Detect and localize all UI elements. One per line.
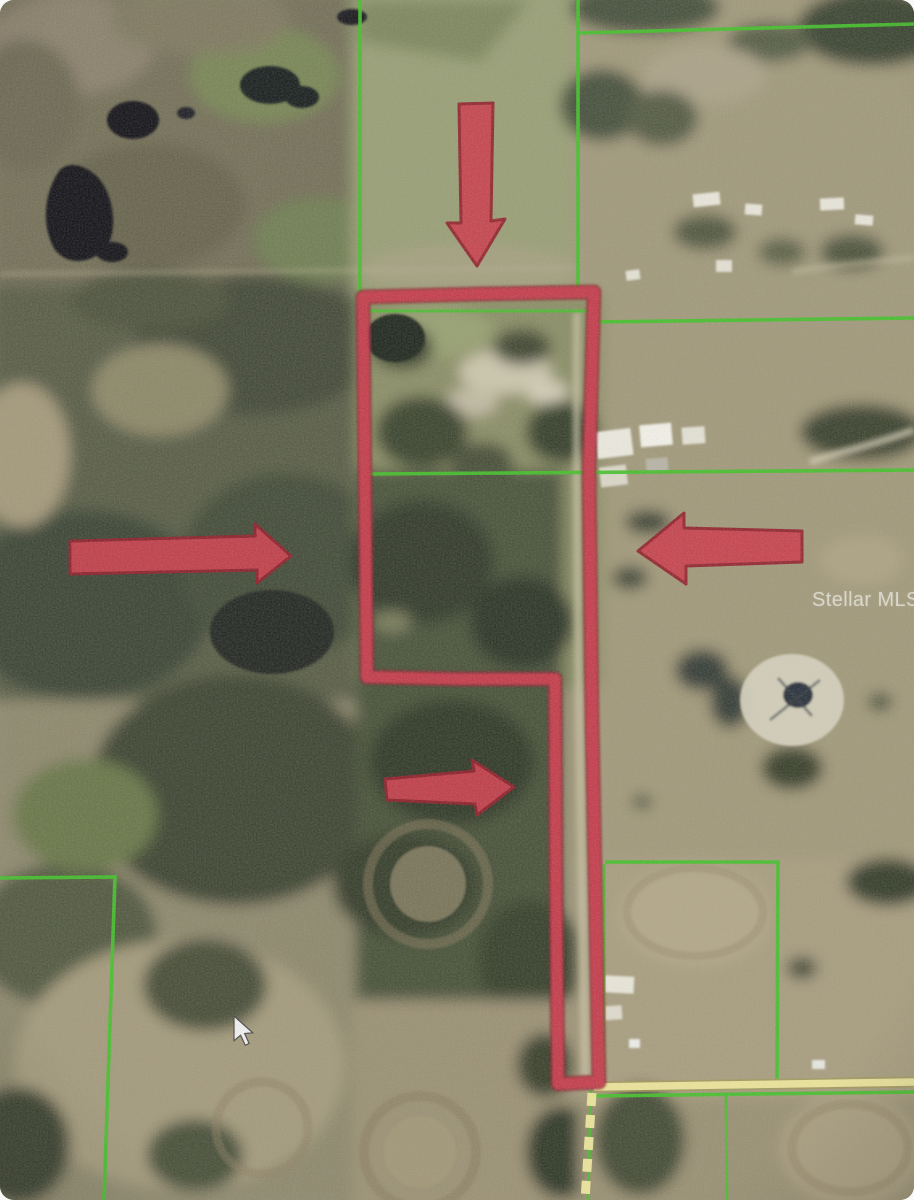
vignette-overlay xyxy=(0,0,914,1200)
screenshot-stage: Stellar MLS xyxy=(0,0,914,1200)
satellite-map-canvas xyxy=(0,0,914,1200)
aerial-map-photo: Stellar MLS xyxy=(0,0,914,1200)
